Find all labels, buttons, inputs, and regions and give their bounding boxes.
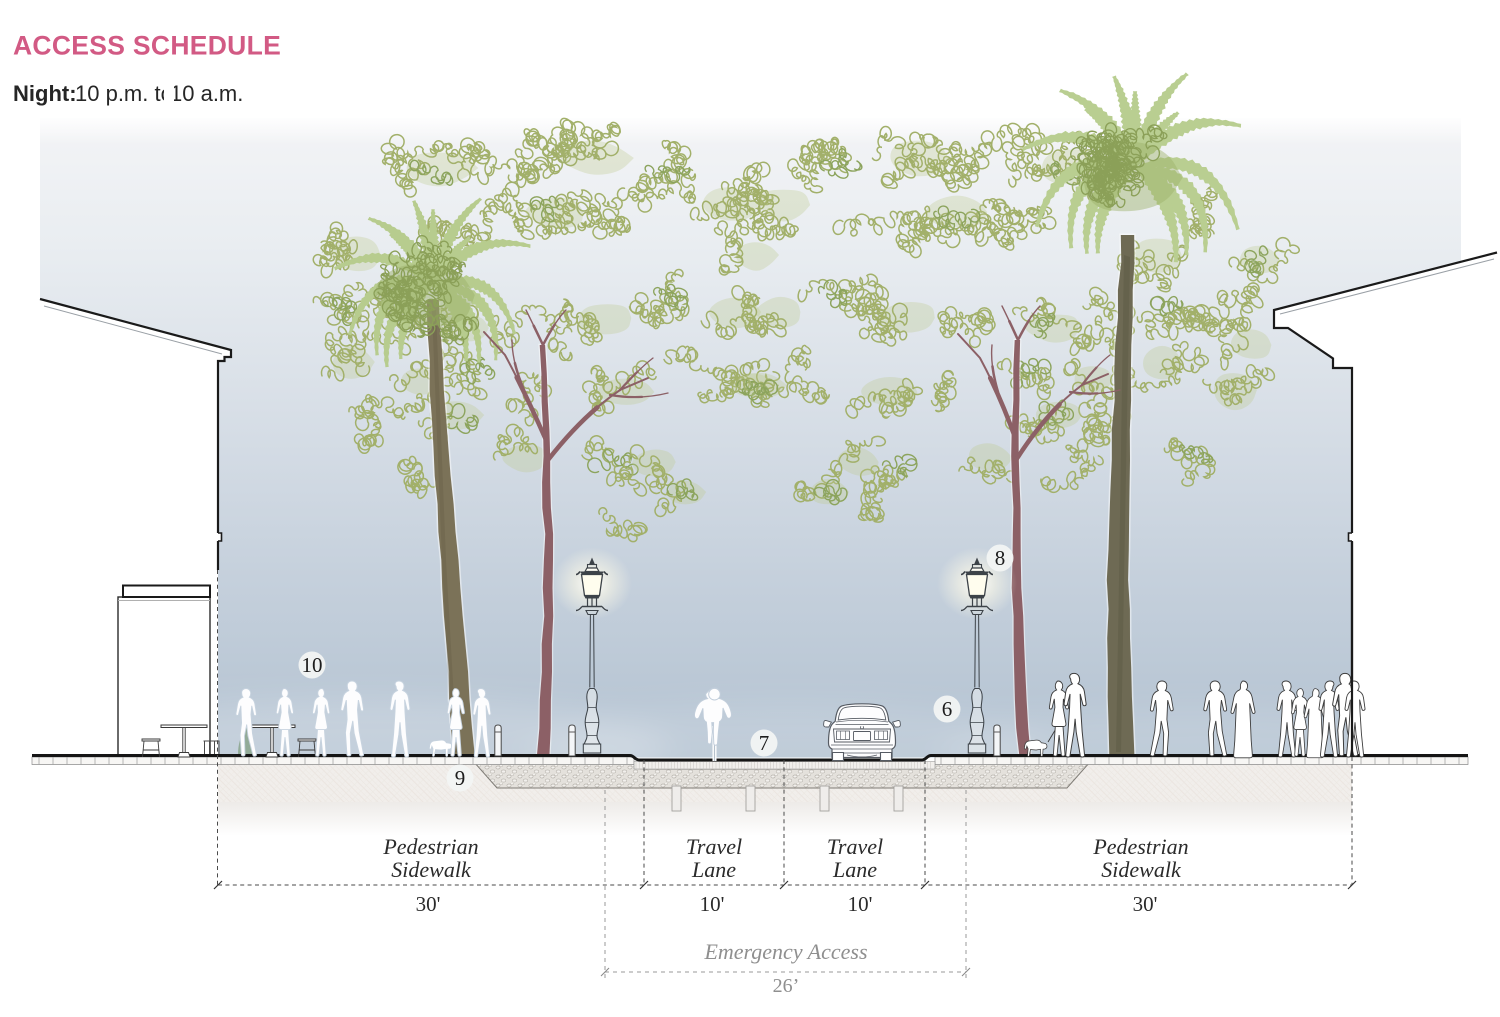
svg-text:7: 7 [759, 731, 770, 755]
svg-text:30': 30' [416, 892, 441, 916]
svg-text:10 p.m. to: 10 p.m. to [75, 81, 173, 106]
svg-text:26’: 26’ [773, 975, 800, 997]
svg-text:Pedestrian: Pedestrian [382, 834, 478, 859]
svg-text:Lane: Lane [832, 857, 877, 882]
svg-text:ACCESS SCHEDULE: ACCESS SCHEDULE [13, 31, 281, 61]
svg-text:Travel: Travel [686, 834, 742, 859]
svg-text:10': 10' [700, 892, 725, 916]
svg-text:Night:: Night: [13, 81, 77, 106]
svg-text:Lane: Lane [691, 857, 736, 882]
svg-text:6: 6 [942, 697, 953, 721]
svg-text:8: 8 [995, 546, 1006, 570]
svg-text:Travel: Travel [827, 834, 883, 859]
svg-text:10 a.m.: 10 a.m. [170, 81, 243, 106]
svg-text:10: 10 [302, 653, 323, 677]
svg-text:10': 10' [848, 892, 873, 916]
svg-text:9: 9 [455, 766, 466, 790]
svg-text:Sidewalk: Sidewalk [1101, 857, 1182, 882]
svg-text:Emergency Access: Emergency Access [703, 939, 867, 964]
svg-text:30': 30' [1133, 892, 1158, 916]
svg-text:Sidewalk: Sidewalk [391, 857, 472, 882]
svg-text:Pedestrian: Pedestrian [1092, 834, 1188, 859]
